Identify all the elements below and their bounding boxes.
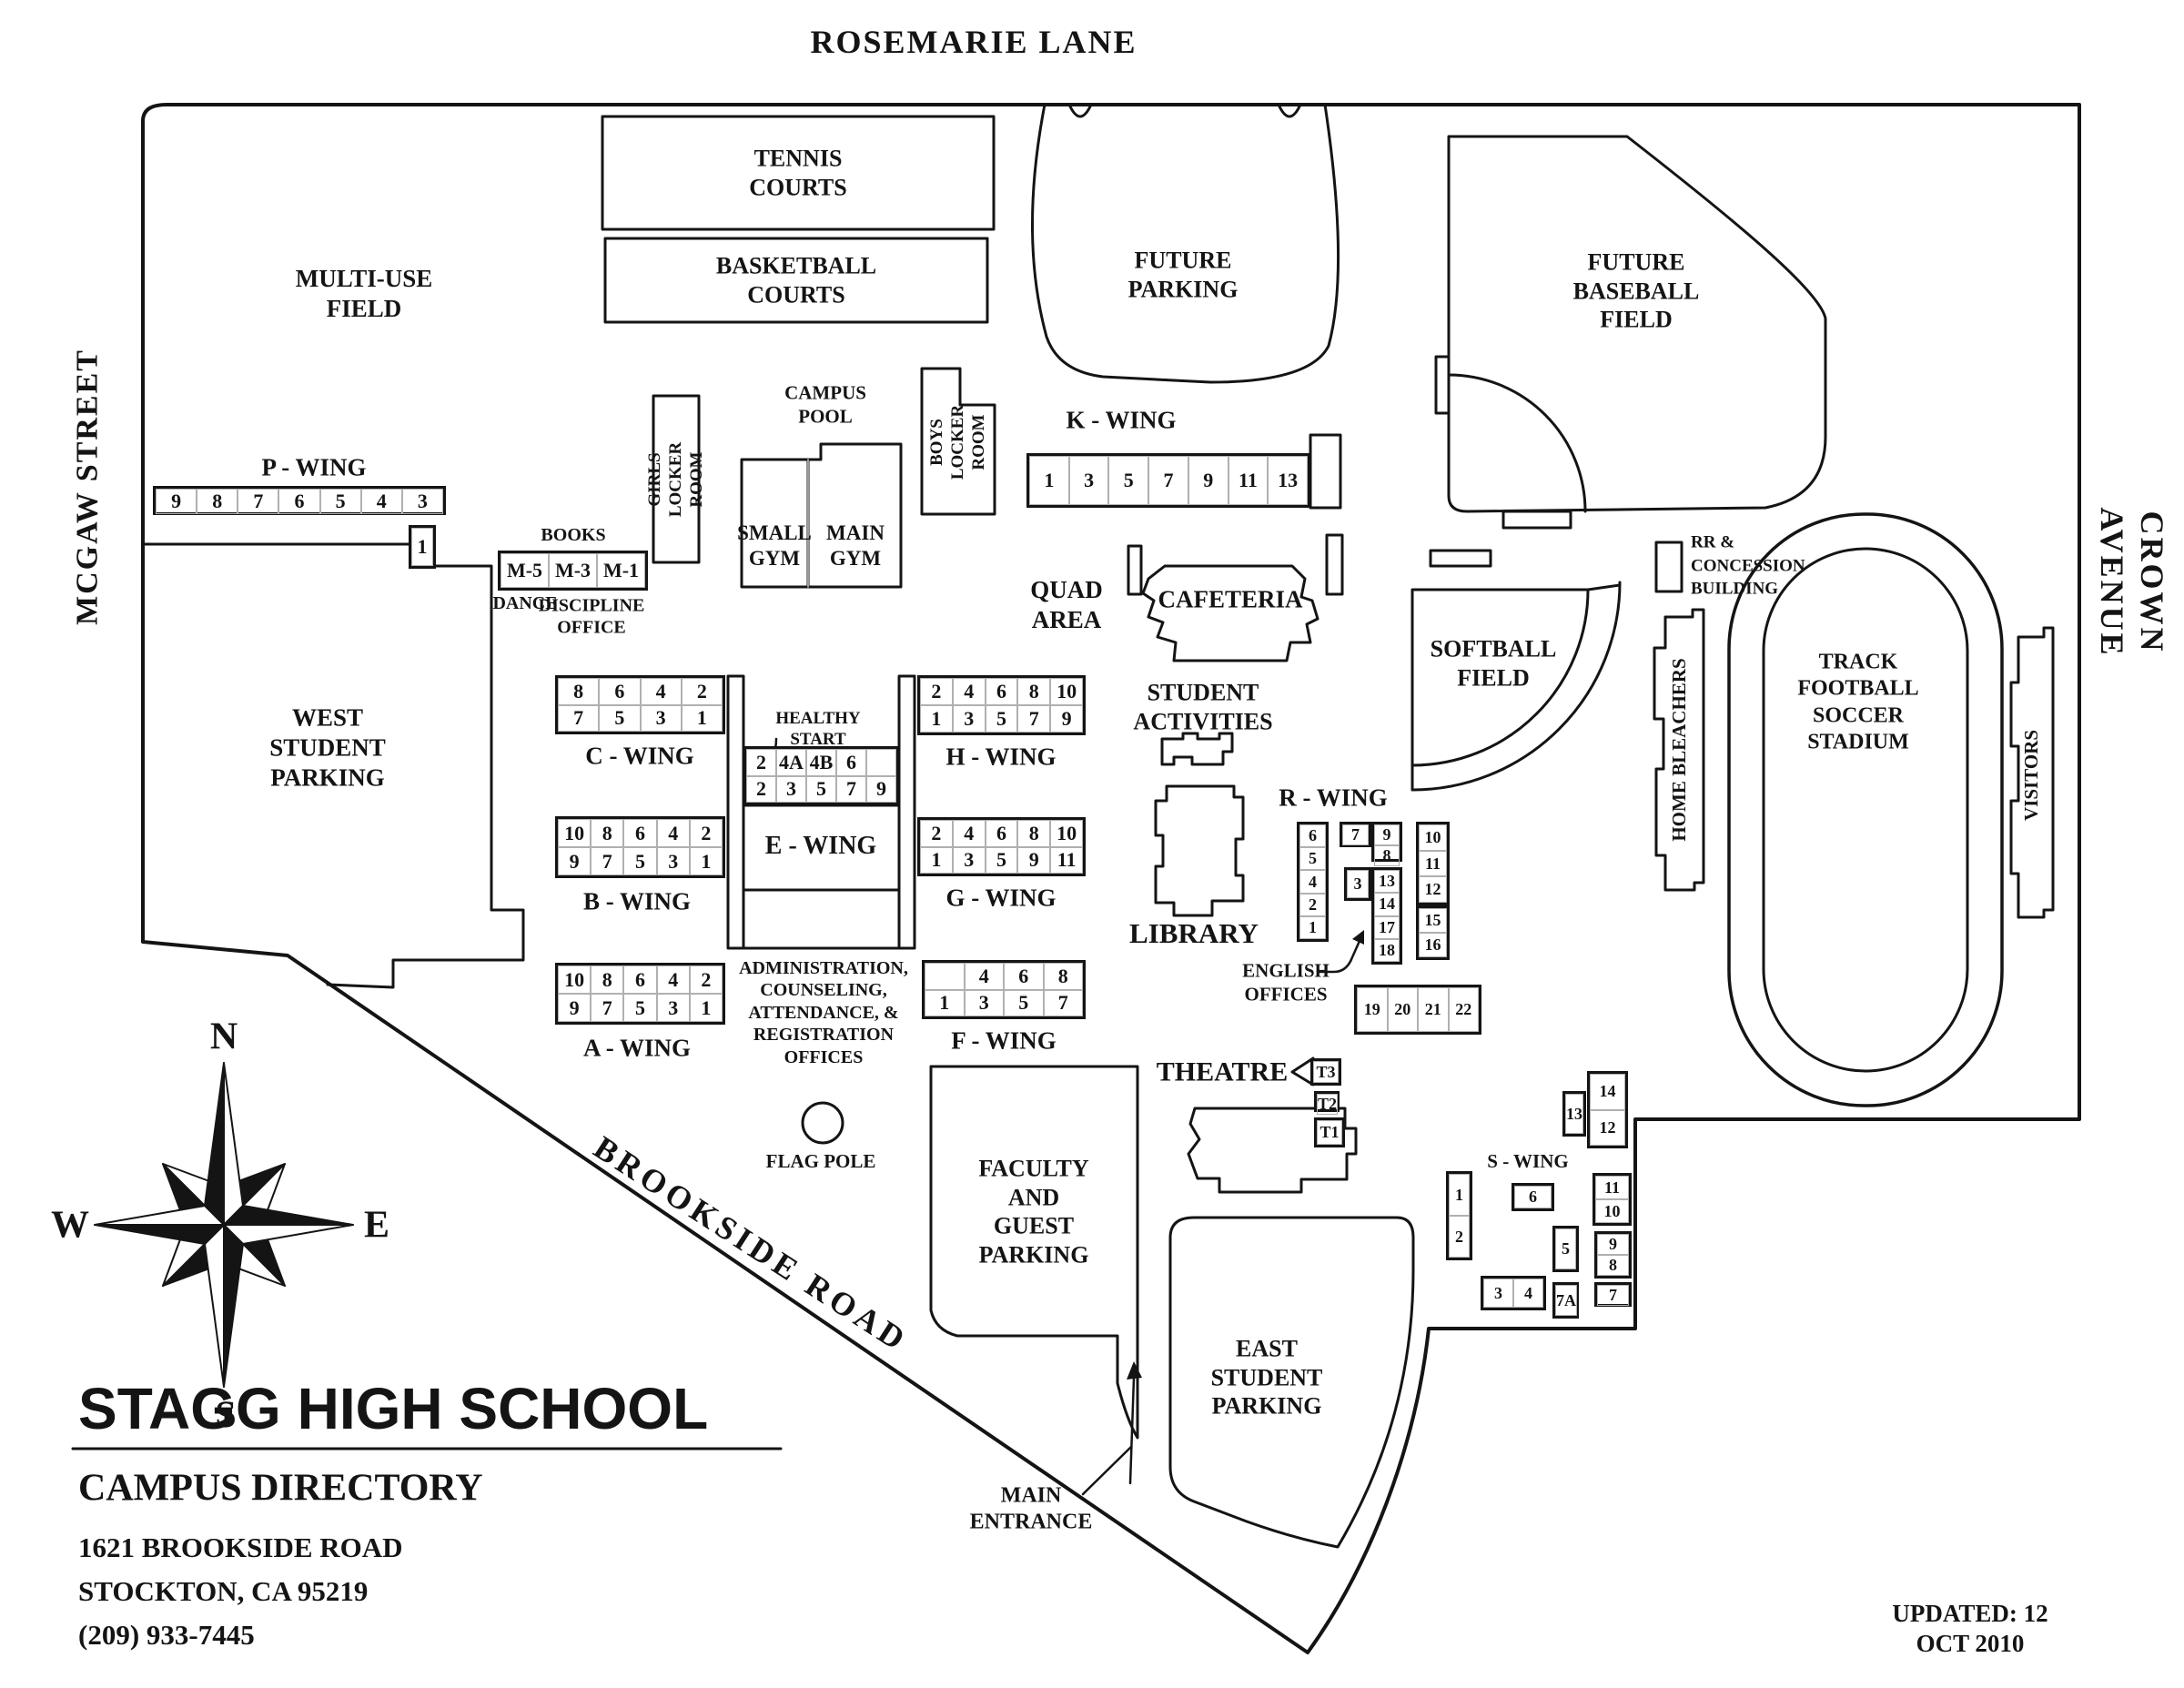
s-wing-rooms-9-8: 98 xyxy=(1594,1231,1632,1279)
room-cell: 2 xyxy=(682,678,723,705)
room-cell: 7 xyxy=(1597,1285,1629,1306)
b-wing-label: B - WING xyxy=(583,887,691,917)
room-cell: 1 xyxy=(1299,916,1326,939)
room-cell: 5 xyxy=(599,705,640,733)
room-cell xyxy=(866,749,896,776)
e-wing-rooms: 24A4B623579 xyxy=(743,746,899,805)
multiuse-field-label: MULTI-USE FIELD xyxy=(296,264,433,324)
room-cell: 9 xyxy=(156,489,197,514)
room-cell: 7 xyxy=(1017,705,1050,733)
room-cell: 1 xyxy=(925,990,965,1017)
cafeteria-label: CAFETERIA xyxy=(1158,585,1302,615)
room-cell: 4 xyxy=(657,819,690,847)
room-cell: 10 xyxy=(558,819,591,847)
room-cell: 6 xyxy=(1299,824,1326,847)
room-cell: 2 xyxy=(1299,894,1326,916)
room-cell: 8 xyxy=(197,489,238,514)
room-cell: 1 xyxy=(690,847,723,875)
room-cell: 7 xyxy=(238,489,278,514)
student-activities-outline xyxy=(1162,733,1232,764)
stadium-inner-track xyxy=(1764,549,1967,1071)
room-cell: 6 xyxy=(599,678,640,705)
room-cell: 18 xyxy=(1374,939,1400,962)
e-wing-label: E - WING xyxy=(765,831,876,862)
library-outline xyxy=(1156,786,1243,915)
room-cell: M-1 xyxy=(597,553,645,588)
k-wing-label: K - WING xyxy=(1066,406,1176,436)
compass-rose xyxy=(95,1063,353,1387)
room-cell: 3 xyxy=(1069,456,1109,505)
baseball-dugout xyxy=(1436,357,1449,413)
s-wing-rooms-14-12: 1412 xyxy=(1587,1071,1628,1148)
room-cell: 3 xyxy=(1347,870,1369,898)
directory-title: CAMPUS DIRECTORY xyxy=(78,1465,483,1511)
room-cell: 2 xyxy=(746,749,776,776)
flag-pole-label: FLAG POLE xyxy=(766,1150,876,1174)
room-cell: 10 xyxy=(1419,824,1447,851)
room-cell: 6 xyxy=(986,678,1018,705)
updated-date: UPDATED: 12 OCT 2010 xyxy=(1864,1599,2078,1659)
room-cell: 7 xyxy=(591,847,623,875)
room-cell: 8 xyxy=(558,678,599,705)
s-wing-label: S - WING xyxy=(1487,1150,1568,1174)
room-cell: 3 xyxy=(1483,1279,1513,1308)
room-cell: 11 xyxy=(1595,1176,1629,1199)
address-line-1: 1621 BROOKSIDE ROAD xyxy=(78,1531,403,1565)
room-cell: 20 xyxy=(1388,987,1419,1032)
room-cell: 9 xyxy=(866,776,896,804)
room-cell: 3 xyxy=(953,847,986,874)
room-cell: 4 xyxy=(953,820,986,847)
room-cell: 10 xyxy=(558,965,591,994)
room-cell: 5 xyxy=(1299,847,1326,870)
rr-concession-label: RR & CONCESSION BUILDING xyxy=(1691,531,1805,601)
c-wing-rooms: 86427531 xyxy=(555,675,725,734)
e-wing-lower xyxy=(743,890,899,948)
room-cell: 8 xyxy=(1017,678,1050,705)
street-mcgaw: MCGAW STREET xyxy=(68,349,106,625)
room-cell: 19 xyxy=(1357,987,1388,1032)
room-cell: 4 xyxy=(965,963,1005,990)
s-wing-rooms-3-4: 34 xyxy=(1481,1276,1546,1310)
room-cell: 9 xyxy=(1374,824,1400,845)
room-cell: 9 xyxy=(558,994,591,1022)
room-cell: 7 xyxy=(558,705,599,733)
room-cell: 4 xyxy=(641,678,682,705)
room-cell: 13 xyxy=(1268,456,1308,505)
b-wing-rooms: 10864297531 xyxy=(555,816,725,878)
room-cell: 5 xyxy=(623,847,656,875)
r-wing-label: R - WING xyxy=(1279,783,1388,814)
room-cell: 12 xyxy=(1590,1110,1625,1147)
flag-pole-circle xyxy=(803,1103,843,1143)
room-cell: 4 xyxy=(657,965,690,994)
phone-number: (209) 933-7445 xyxy=(78,1618,255,1653)
school-title: STAGG HIGH SCHOOL xyxy=(78,1373,708,1444)
room-cell: 2 xyxy=(920,820,953,847)
s-wing-room-7a: 7A xyxy=(1552,1282,1579,1319)
room-cell: 5 xyxy=(1004,990,1044,1017)
room-cell: 1 xyxy=(690,994,723,1022)
room-cell: T2 xyxy=(1317,1094,1338,1115)
room-cell: 11 xyxy=(1050,847,1083,874)
room-cell: 2 xyxy=(690,965,723,994)
room-cell: 11 xyxy=(1228,456,1269,505)
room-cell: 2 xyxy=(690,819,723,847)
library-label: LIBRARY xyxy=(1129,916,1259,951)
room-cell: 9 xyxy=(1188,456,1228,505)
rr-concession-outline xyxy=(1656,542,1682,591)
room-cell: M-3 xyxy=(549,553,597,588)
softball-field-label: SOFTBALL FIELD xyxy=(1431,634,1557,692)
discipline-office-label: DISCIPLINE OFFICE xyxy=(539,595,645,640)
future-parking-label: FUTURE PARKING xyxy=(1128,246,1239,303)
theatre-room-t3: T3 xyxy=(1310,1058,1341,1086)
room-cell: 6 xyxy=(623,965,656,994)
room-cell: 5 xyxy=(986,847,1018,874)
r-wing-rooms-9-8: 98 xyxy=(1371,822,1402,862)
baseball-infield-arc xyxy=(1449,375,1585,511)
room-cell: 10 xyxy=(1595,1199,1629,1223)
corridor-east xyxy=(899,676,915,948)
room-cell: 4 xyxy=(1513,1279,1543,1308)
room-cell: 17 xyxy=(1374,916,1400,939)
room-cell: 12 xyxy=(1419,876,1447,903)
room-cell: 2 xyxy=(920,678,953,705)
room-cell: 6 xyxy=(623,819,656,847)
s-wing-rooms-11-10: 1110 xyxy=(1592,1173,1632,1226)
room-cell: 7 xyxy=(836,776,866,804)
room-cell: 14 xyxy=(1374,893,1400,915)
room-cell: 8 xyxy=(1597,1255,1629,1276)
room-cell: 14 xyxy=(1590,1074,1625,1110)
room-cell: 8 xyxy=(591,965,623,994)
room-cell xyxy=(925,963,965,990)
main-entrance-label: MAIN ENTRANCE xyxy=(970,1483,1093,1537)
r-wing-mid-rooms: 13141718 xyxy=(1371,867,1402,965)
room-cell: 3 xyxy=(657,994,690,1022)
quad-area-label: QUAD AREA xyxy=(1030,575,1103,635)
room-cell: 7 xyxy=(1342,824,1369,845)
room-cell: 1 xyxy=(1029,456,1069,505)
compass-w: W xyxy=(51,1202,89,1248)
home-bleachers-label: HOME BLEACHERS xyxy=(1668,658,1692,841)
room-cell: 2 xyxy=(746,776,776,804)
g-wing-rooms: 246810135911 xyxy=(917,817,1086,876)
room-cell: 7 xyxy=(1148,456,1188,505)
visitors-label: VISITORS xyxy=(2020,730,2044,821)
room-cell: 5 xyxy=(1108,456,1148,505)
room-cell: 7A xyxy=(1555,1285,1577,1316)
s-wing-room-7: 7 xyxy=(1594,1282,1632,1307)
small-gym-label: SMALL GYM xyxy=(737,521,812,571)
walkway-cover-2 xyxy=(1327,535,1342,594)
room-cell: 1 xyxy=(1449,1174,1470,1216)
room-cell: 9 xyxy=(1017,847,1050,874)
room-cell: 1 xyxy=(920,847,953,874)
student-activities-label: STUDENT ACTIVITIES xyxy=(1133,678,1272,735)
room-cell: 1 xyxy=(682,705,723,733)
h-wing-rooms: 24681013579 xyxy=(917,675,1086,735)
healthy-start-label: HEALTHY START xyxy=(775,708,860,750)
room-cell: 8 xyxy=(1374,845,1400,866)
room-cell: 3 xyxy=(402,489,443,514)
room-cell: 4 xyxy=(361,489,402,514)
room-cell: 21 xyxy=(1418,987,1449,1032)
room-cell: 3 xyxy=(953,705,986,733)
s-wing-rooms-1-2: 12 xyxy=(1446,1171,1472,1260)
room-cell: 8 xyxy=(591,819,623,847)
room-cell: M-5 xyxy=(500,553,549,588)
a-wing-label: A - WING xyxy=(583,1034,691,1064)
r-wing-right-mid-rooms: 1516 xyxy=(1416,905,1450,960)
girls-locker-label: GIRLS LOCKER ROOM xyxy=(644,442,708,517)
room-cell: 7 xyxy=(1044,990,1084,1017)
room-cell: 11 xyxy=(1419,851,1447,877)
room-cell: 1 xyxy=(920,705,953,733)
s-wing-room-13: 13 xyxy=(1562,1091,1586,1137)
k-wing-step xyxy=(1310,435,1340,508)
east-parking-label: EAST STUDENT PARKING xyxy=(1211,1334,1323,1420)
p-wing-label: P - WING xyxy=(261,453,366,483)
p-wing-rooms: 9876543 xyxy=(153,486,446,515)
admin-offices-label: ADMINISTRATION, COUNSELING, ATTENDANCE, … xyxy=(739,957,908,1068)
room-cell: 6 xyxy=(836,749,866,776)
room-cell: 9 xyxy=(558,847,591,875)
room-cell: 6 xyxy=(1004,963,1044,990)
room-cell: 5 xyxy=(806,776,836,804)
tennis-courts-label: TENNIS COURTS xyxy=(749,144,846,201)
street-rosemarie: ROSEMARIE LANE xyxy=(810,23,1137,63)
room-cell: T3 xyxy=(1313,1061,1339,1083)
s-wing-room-6: 6 xyxy=(1512,1183,1554,1211)
s-wing-room-5: 5 xyxy=(1552,1226,1579,1272)
room-cell: 8 xyxy=(1017,820,1050,847)
corridor-west xyxy=(728,676,743,948)
room-cell: 9 xyxy=(1597,1234,1629,1255)
room-cell: 9 xyxy=(1050,705,1083,733)
k-wing-rooms: 135791113 xyxy=(1026,453,1310,508)
campus-map: ROSEMARIE LANE MCGAW STREET CROWN AVENUE… xyxy=(0,0,2184,1688)
compass-e: E xyxy=(364,1202,389,1248)
r-wing-bottom-rooms: 19202122 xyxy=(1354,985,1481,1035)
room-cell: 6 xyxy=(1514,1186,1552,1208)
room-cell: 10 xyxy=(1050,678,1083,705)
street-crown: CROWN AVENUE xyxy=(2091,507,2171,657)
room-cell: 13 xyxy=(1374,870,1400,893)
theatre-label: THEATRE xyxy=(1157,1056,1288,1090)
baseball-bump xyxy=(1503,511,1571,528)
room-cell: 5 xyxy=(986,705,1018,733)
room-cell: 22 xyxy=(1449,987,1480,1032)
room-cell: 3 xyxy=(965,990,1005,1017)
main-gym-label: MAIN GYM xyxy=(826,521,885,571)
campus-pool-label: CAMPUS POOL xyxy=(784,381,866,428)
r-wing-right-top-rooms: 101112 xyxy=(1416,822,1450,905)
west-parking-label: WEST STUDENT PARKING xyxy=(269,703,386,793)
h-wing-label: H - WING xyxy=(945,743,1056,773)
room-cell: 1 xyxy=(411,528,433,566)
room-cell: 6 xyxy=(986,820,1018,847)
room-cell: 3 xyxy=(776,776,806,804)
walkway-cover-3 xyxy=(1431,551,1491,566)
boys-locker-label: BOYS LOCKER ROOM xyxy=(926,405,990,480)
a-wing-rooms: 10864297531 xyxy=(555,963,725,1025)
room-cell: 2 xyxy=(1449,1216,1470,1258)
room-cell: 3 xyxy=(657,847,690,875)
room-cell: 3 xyxy=(641,705,682,733)
room-cell: 5 xyxy=(623,994,656,1022)
p-wing-room-1: 1 xyxy=(409,525,436,569)
room-cell: 5 xyxy=(320,489,361,514)
walkway-cover-1 xyxy=(1128,546,1141,594)
room-cell: 7 xyxy=(591,994,623,1022)
room-cell: 8 xyxy=(1044,963,1084,990)
m-buildings: M-5M-3M-1 xyxy=(498,551,648,591)
r-wing-room-7: 7 xyxy=(1340,822,1371,847)
faculty-parking-label: FACULTY AND GUEST PARKING xyxy=(978,1155,1088,1270)
c-wing-label: C - WING xyxy=(585,742,694,772)
room-cell: 4 xyxy=(1299,870,1326,893)
basketball-courts-label: BASKETBALL COURTS xyxy=(716,251,876,308)
theatre-room-t2: T2 xyxy=(1314,1091,1340,1112)
r-wing-room-3: 3 xyxy=(1344,867,1371,901)
r-wing-left-rooms: 65421 xyxy=(1297,822,1329,942)
g-wing-label: G - WING xyxy=(945,884,1056,914)
room-cell: 10 xyxy=(1050,820,1083,847)
room-cell: 5 xyxy=(1555,1228,1576,1269)
room-cell: 6 xyxy=(278,489,319,514)
room-cell: 4B xyxy=(806,749,836,776)
english-offices-label: ENGLISH OFFICES xyxy=(1242,959,1330,1006)
stadium-outer-track xyxy=(1729,514,2002,1106)
room-cell: 16 xyxy=(1419,933,1447,957)
theatre-room-t1: T1 xyxy=(1314,1117,1345,1147)
books-label: BOOKS xyxy=(541,524,605,546)
future-parking-outline xyxy=(1032,105,1338,382)
room-cell: 15 xyxy=(1419,908,1447,933)
f-wing-label: F - WING xyxy=(951,1026,1057,1056)
room-cell: 4 xyxy=(953,678,986,705)
compass-n: N xyxy=(210,1014,238,1060)
f-wing-rooms: 4681357 xyxy=(922,960,1086,1019)
address-line-2: STOCKTON, CA 95219 xyxy=(78,1574,368,1609)
room-cell: 4A xyxy=(776,749,806,776)
room-cell: 13 xyxy=(1565,1094,1583,1134)
room-cell: T1 xyxy=(1317,1120,1342,1145)
stadium-label: TRACK FOOTBALL SOCCER STADIUM xyxy=(1797,649,1918,755)
future-baseball-label: FUTURE BASEBALL FIELD xyxy=(1573,248,1700,334)
